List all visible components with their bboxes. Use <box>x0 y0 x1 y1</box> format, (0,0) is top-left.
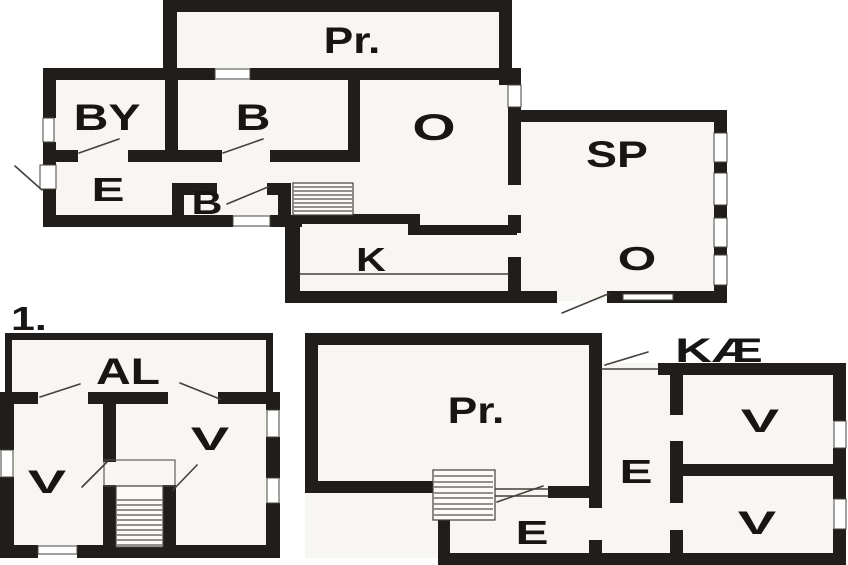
room-label-v-upper: V <box>741 403 779 439</box>
room-label-e-upper: E <box>619 453 652 490</box>
floor-number-label: 1. <box>11 301 47 338</box>
window <box>714 255 727 285</box>
floor-plan-canvas: Pr. BY B O SP E B K O 1. AL V V <box>0 0 848 565</box>
room-label-pr: Pr. <box>324 20 381 62</box>
room-label-k: K <box>356 241 386 278</box>
room-label-v-left: V <box>28 464 66 500</box>
room-label-by: BY <box>74 97 141 138</box>
window <box>267 478 279 503</box>
entry-door-opening <box>40 165 56 189</box>
window <box>1 450 13 477</box>
room-label-v-lower: V <box>738 505 776 541</box>
window <box>834 421 846 448</box>
room-label-o-small: O <box>618 240 657 277</box>
window <box>623 294 673 300</box>
window <box>215 69 250 79</box>
window <box>267 410 279 437</box>
floor-plan-drawing: Pr. BY B O SP E B K O 1. AL V V <box>0 0 848 565</box>
room-label-e: E <box>91 171 124 208</box>
room-label-o: O <box>412 106 455 148</box>
staircase <box>293 183 353 215</box>
basement-plan: KÆ Pr. E E V V <box>305 332 846 565</box>
room-label-b-small: B <box>192 185 223 222</box>
window <box>38 546 77 554</box>
room-label-v-right: V <box>191 421 229 457</box>
window <box>714 173 727 205</box>
window <box>43 118 54 142</box>
window <box>508 85 521 107</box>
room-label-b: B <box>236 97 271 138</box>
window <box>834 499 846 529</box>
room-label-al: AL <box>96 351 160 392</box>
staircase <box>433 470 495 520</box>
door-swing-line <box>15 166 42 190</box>
room-label-e-lower: E <box>515 514 548 551</box>
window <box>233 216 270 226</box>
ground-floor-plan: Pr. BY B O SP E B K O <box>15 0 727 313</box>
room-label-sp: SP <box>586 133 648 175</box>
first-floor-plan: 1. AL V V <box>0 301 280 558</box>
basement-entrance-label: KÆ <box>675 332 763 370</box>
window <box>714 218 727 247</box>
room-label-pr-basement: Pr. <box>448 390 505 432</box>
window <box>714 133 727 162</box>
